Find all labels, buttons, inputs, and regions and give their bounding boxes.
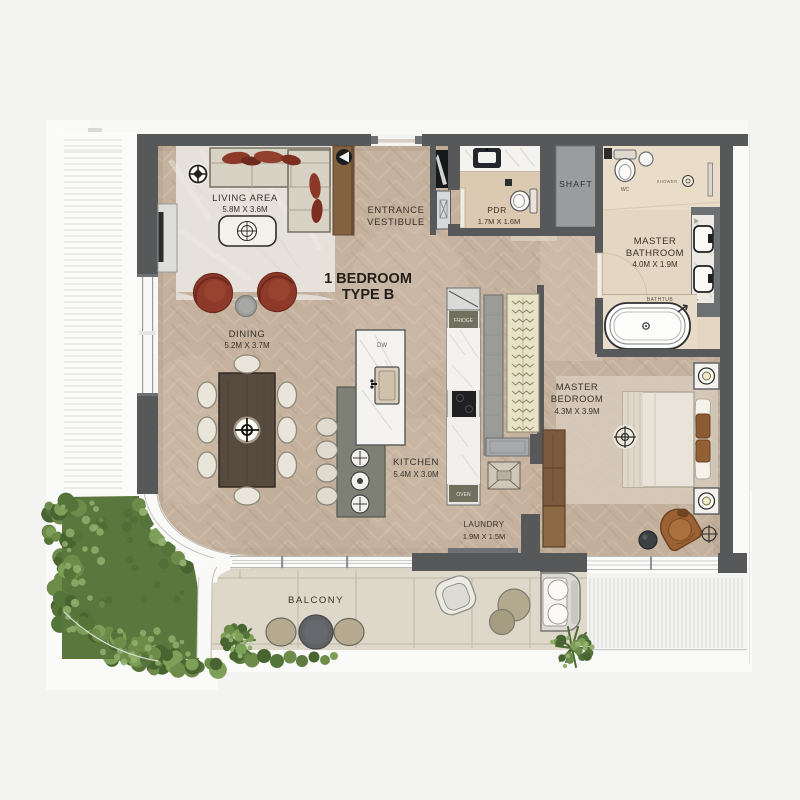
svg-text:4.3M X 3.9M: 4.3M X 3.9M xyxy=(554,407,600,416)
svg-text:5.8M X 3.6M: 5.8M X 3.6M xyxy=(222,205,268,214)
svg-text:ENTRANCE: ENTRANCE xyxy=(367,205,424,216)
svg-text:BALCONY: BALCONY xyxy=(288,595,344,606)
svg-text:BATHROOM: BATHROOM xyxy=(626,248,684,259)
svg-text:PDR: PDR xyxy=(487,205,506,215)
svg-text:FRIDGE: FRIDGE xyxy=(454,318,474,324)
svg-text:1.9M X 1.5M: 1.9M X 1.5M xyxy=(463,532,506,541)
svg-text:5.2M X 3.7M: 5.2M X 3.7M xyxy=(224,341,270,350)
svg-text:OVEN: OVEN xyxy=(456,492,471,498)
svg-text:MASTER: MASTER xyxy=(634,236,677,247)
svg-text:TYPE B: TYPE B xyxy=(342,287,394,303)
svg-text:DW: DW xyxy=(377,343,387,349)
svg-text:WC: WC xyxy=(621,187,630,193)
svg-text:1.7M X 1.6M: 1.7M X 1.6M xyxy=(478,217,521,226)
svg-text:DINING: DINING xyxy=(229,329,266,340)
svg-text:KITCHEN: KITCHEN xyxy=(393,457,439,468)
svg-text:BATHTUB: BATHTUB xyxy=(647,297,674,303)
svg-text:BEDROOM: BEDROOM xyxy=(551,394,604,405)
svg-text:5.4M X 3.0M: 5.4M X 3.0M xyxy=(393,470,439,479)
svg-text:SHAFT: SHAFT xyxy=(559,179,593,189)
svg-text:1 BEDROOM: 1 BEDROOM xyxy=(324,271,412,287)
svg-text:LAUNDRY: LAUNDRY xyxy=(464,520,505,529)
svg-text:MASTER: MASTER xyxy=(556,382,599,393)
svg-text:SHOWER: SHOWER xyxy=(657,179,678,184)
svg-text:VESTIBULE: VESTIBULE xyxy=(367,217,425,228)
svg-text:4.0M X 1.9M: 4.0M X 1.9M xyxy=(632,260,678,269)
svg-text:LIVING AREA: LIVING AREA xyxy=(212,193,278,204)
